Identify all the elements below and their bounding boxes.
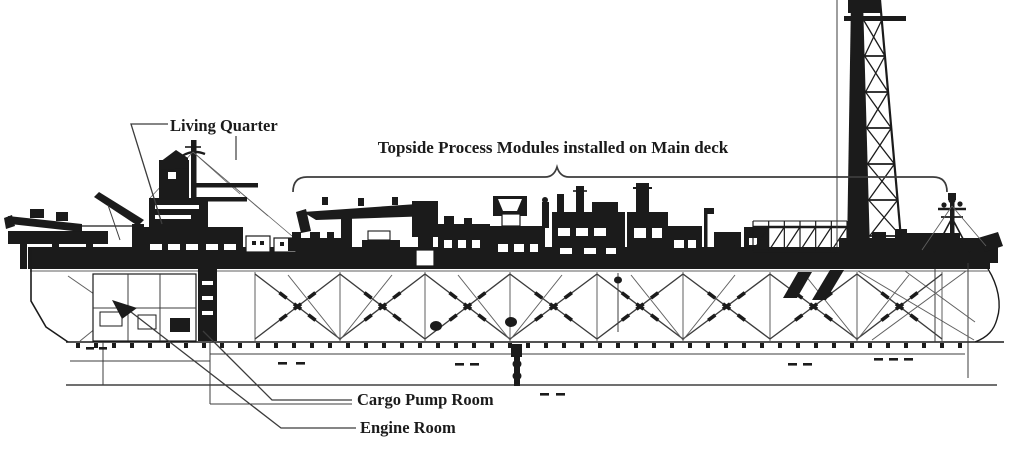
bow-crane-boom <box>94 192 144 226</box>
hull-cross-bracing <box>255 272 942 341</box>
derrick-mast <box>847 0 870 250</box>
derrick-chord <box>880 0 902 250</box>
bow-boom <box>8 216 82 232</box>
drawing-canvas: Living Quarter Topside Process Modules i… <box>0 0 1024 453</box>
module-cluster <box>552 212 625 267</box>
derrick-tower <box>837 0 909 269</box>
slab <box>783 272 812 298</box>
living-quarter-label: Living Quarter <box>170 116 278 135</box>
pump-room-casing <box>198 269 217 341</box>
crane-kingpost <box>341 216 352 252</box>
fpso-technical-drawing: Living Quarter Topside Process Modules i… <box>0 0 1024 453</box>
stern-profile <box>975 269 999 342</box>
cargo-pump-room-label: Cargo Pump Room <box>357 390 494 409</box>
derrick-base <box>839 238 909 269</box>
crane-house <box>412 201 438 237</box>
bow-platform <box>8 231 108 244</box>
derrick-lattice <box>864 20 901 236</box>
hull-attachments <box>430 273 622 386</box>
slab <box>812 270 844 300</box>
topside-modules-label: Topside Process Modules installed on Mai… <box>378 138 729 157</box>
engine-room-label: Engine Room <box>360 418 456 437</box>
annotations: Living Quarter Topside Process Modules i… <box>131 116 947 437</box>
deck-box <box>246 236 270 252</box>
